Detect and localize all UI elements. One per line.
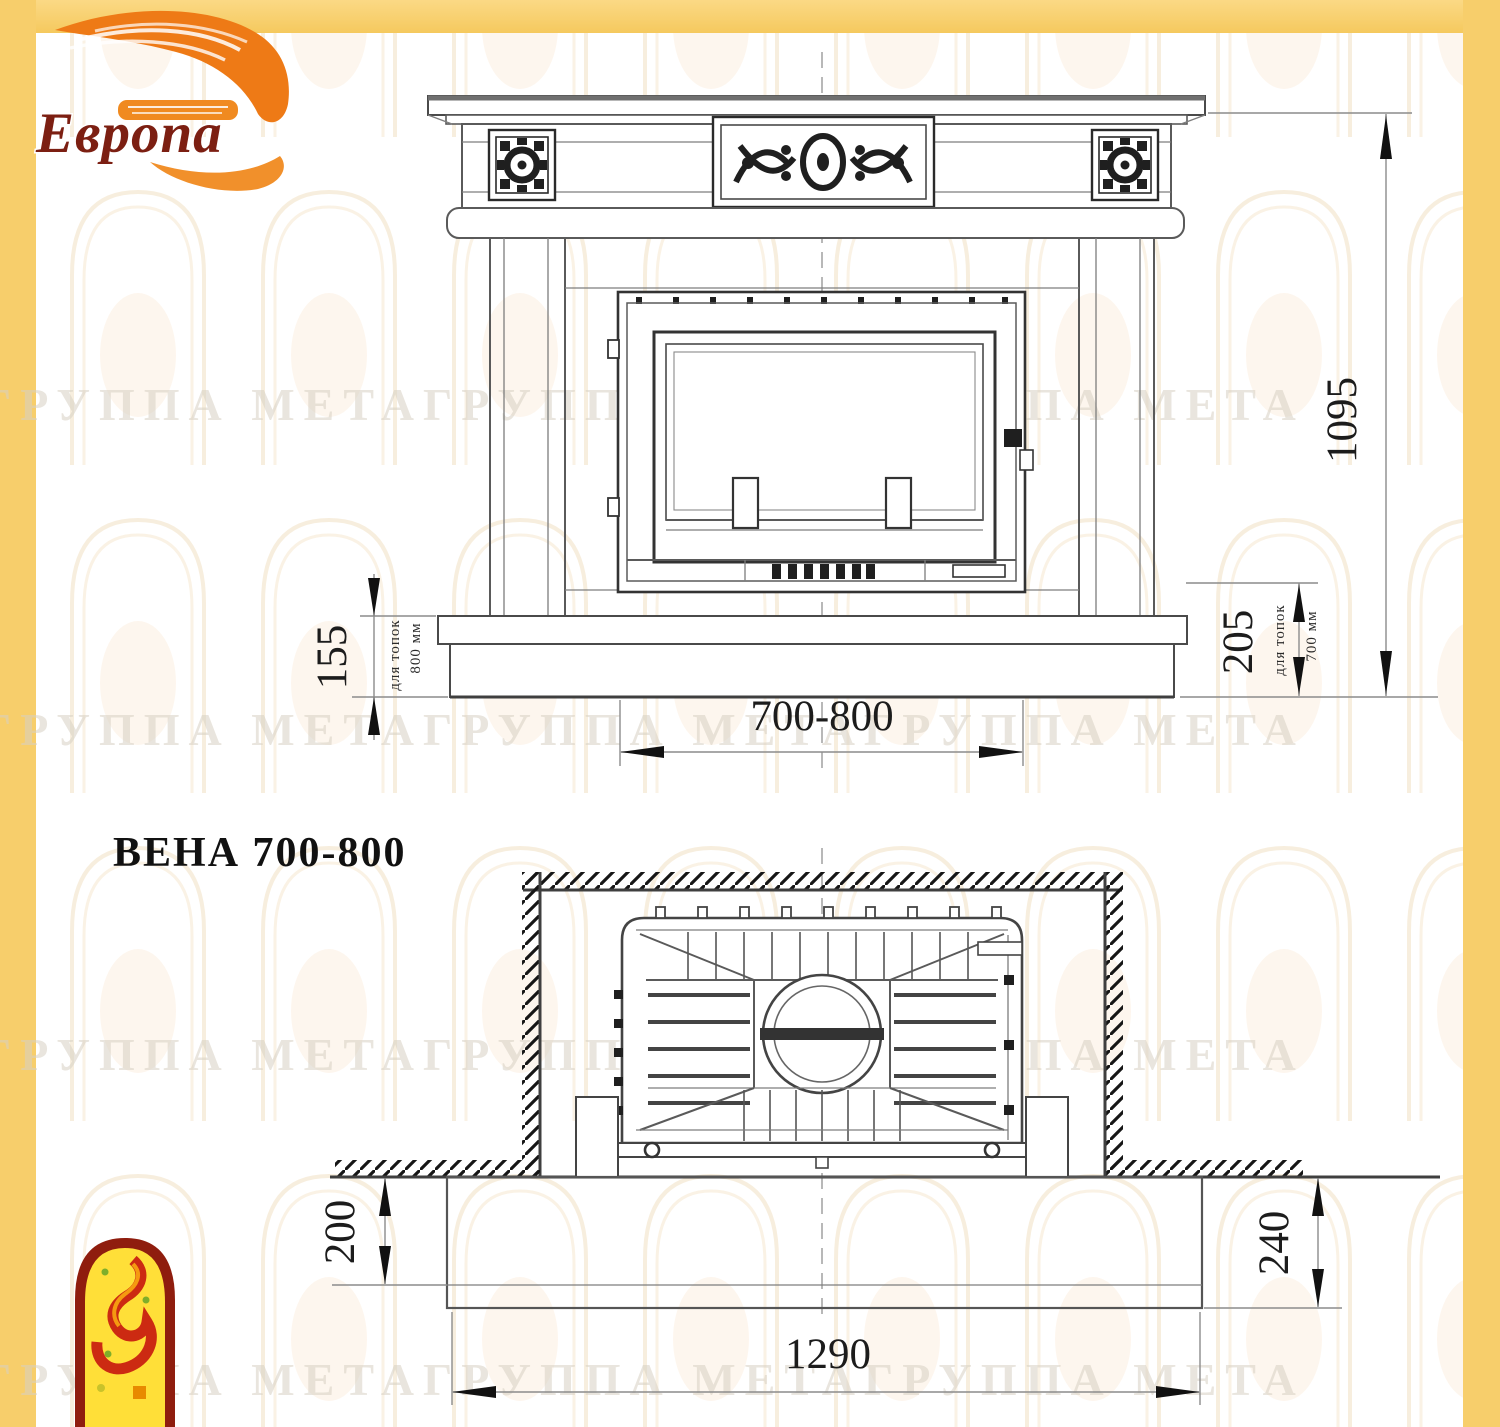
dim-label-155: 155: [309, 625, 356, 690]
hinge-bottom: [608, 498, 619, 516]
note-firebox-700-line2: 700 мм: [1304, 610, 1320, 661]
hinge-top: [608, 340, 619, 358]
technical-drawing-canvas: ГРУППА МЕТАГРУППА МЕТАГРУППА МЕТА ГРУППА…: [0, 0, 1500, 1427]
dim-label-240: 240: [1251, 1211, 1298, 1276]
firebird-arch-icon: [75, 1238, 175, 1427]
dim-label-1290: 1290: [785, 1331, 871, 1378]
catalog-page: ГРУППА МЕТАГРУППА МЕТАГРУППА МЕТА ГРУППА…: [0, 0, 1500, 1427]
molding-band: [447, 208, 1184, 238]
note-firebox-800-line1: для топок: [387, 619, 403, 690]
frieze-band: [462, 117, 1171, 208]
rosette-left: [489, 130, 555, 200]
dim-label-700-800: 700-800: [750, 693, 893, 740]
base-frame-bar: [600, 1143, 1048, 1157]
base-plinth: [438, 616, 1187, 697]
door-handle: [1004, 429, 1022, 447]
firebox-insert: [608, 292, 1033, 592]
foot-right: [985, 1143, 999, 1157]
dim-label-1095: 1095: [1319, 377, 1366, 463]
pillar-footprint-left: [576, 1097, 618, 1177]
maker-plate: [953, 565, 1005, 577]
dim-label-200: 200: [317, 1200, 364, 1265]
door-latch-right: [886, 478, 911, 528]
insert-plan: [600, 907, 1048, 1168]
damper-bar: [760, 1028, 884, 1040]
ornament-panel: [713, 117, 934, 207]
door-latch-left: [733, 478, 758, 528]
dim-label-205: 205: [1215, 610, 1262, 675]
rosette-right: [1092, 130, 1158, 200]
brand-name: Европа: [35, 102, 223, 165]
note-firebox-700-line1: для топок: [1272, 604, 1288, 675]
note-firebox-800-line2: 800 мм: [408, 622, 424, 673]
top-studs: [656, 907, 1001, 918]
watermark-row: ГРУППА МЕТАГРУППА МЕТАГРУППА МЕТА: [0, 1354, 1305, 1405]
pillar-footprint-right: [1026, 1097, 1068, 1177]
page-title: ВЕНА 700-800: [113, 830, 407, 876]
watermark-row: ГРУППА МЕТАГРУППА МЕТАГРУППА МЕТА: [0, 704, 1305, 755]
foot-left: [645, 1143, 659, 1157]
